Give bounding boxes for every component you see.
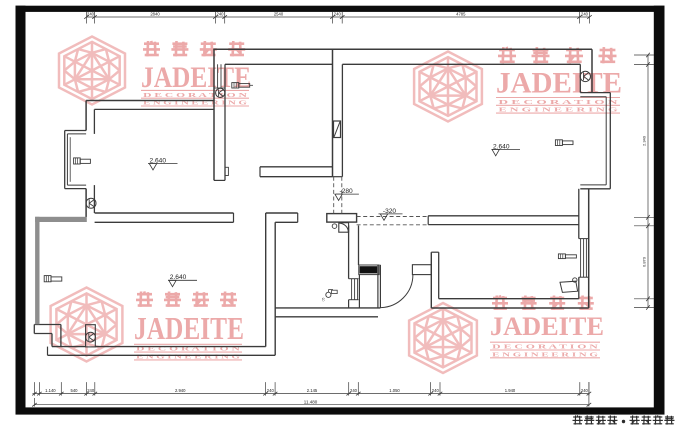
svg-text:240: 240	[87, 388, 95, 393]
svg-text:2540: 2540	[274, 12, 284, 17]
svg-text:2.940: 2.940	[175, 388, 186, 393]
svg-text:240: 240	[350, 388, 358, 393]
svg-text:2840: 2840	[150, 12, 160, 17]
svg-text:240: 240	[217, 12, 225, 17]
svg-text:240: 240	[432, 388, 440, 393]
svg-text:1.140: 1.140	[45, 388, 56, 393]
svg-text:JADEITE: JADEITE	[134, 310, 244, 346]
svg-text:240: 240	[581, 388, 589, 393]
svg-text:05: 05	[322, 298, 326, 302]
svg-text:11.480: 11.480	[304, 399, 318, 404]
svg-text:240: 240	[334, 12, 342, 17]
svg-text:240: 240	[267, 388, 275, 393]
svg-text:0.870: 0.870	[642, 256, 647, 267]
svg-text:240: 240	[87, 12, 95, 17]
svg-text:240: 240	[581, 12, 589, 17]
svg-text:2.145: 2.145	[307, 388, 318, 393]
svg-text:JADEITE: JADEITE	[490, 312, 604, 341]
svg-text:JADEITE: JADEITE	[141, 61, 251, 94]
svg-text:2.340: 2.340	[642, 135, 647, 146]
svg-text:JADEITE: JADEITE	[496, 67, 622, 100]
svg-text:1.050: 1.050	[389, 388, 400, 393]
svg-text:4785: 4785	[456, 12, 466, 17]
svg-text:1.940: 1.940	[505, 388, 516, 393]
svg-text:540: 540	[71, 388, 79, 393]
